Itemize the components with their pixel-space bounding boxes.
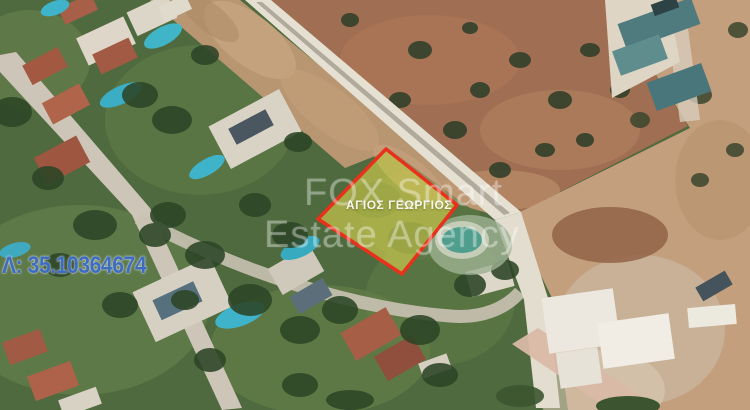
satellite-map-image [0,0,750,410]
satellite-map [0,0,750,410]
